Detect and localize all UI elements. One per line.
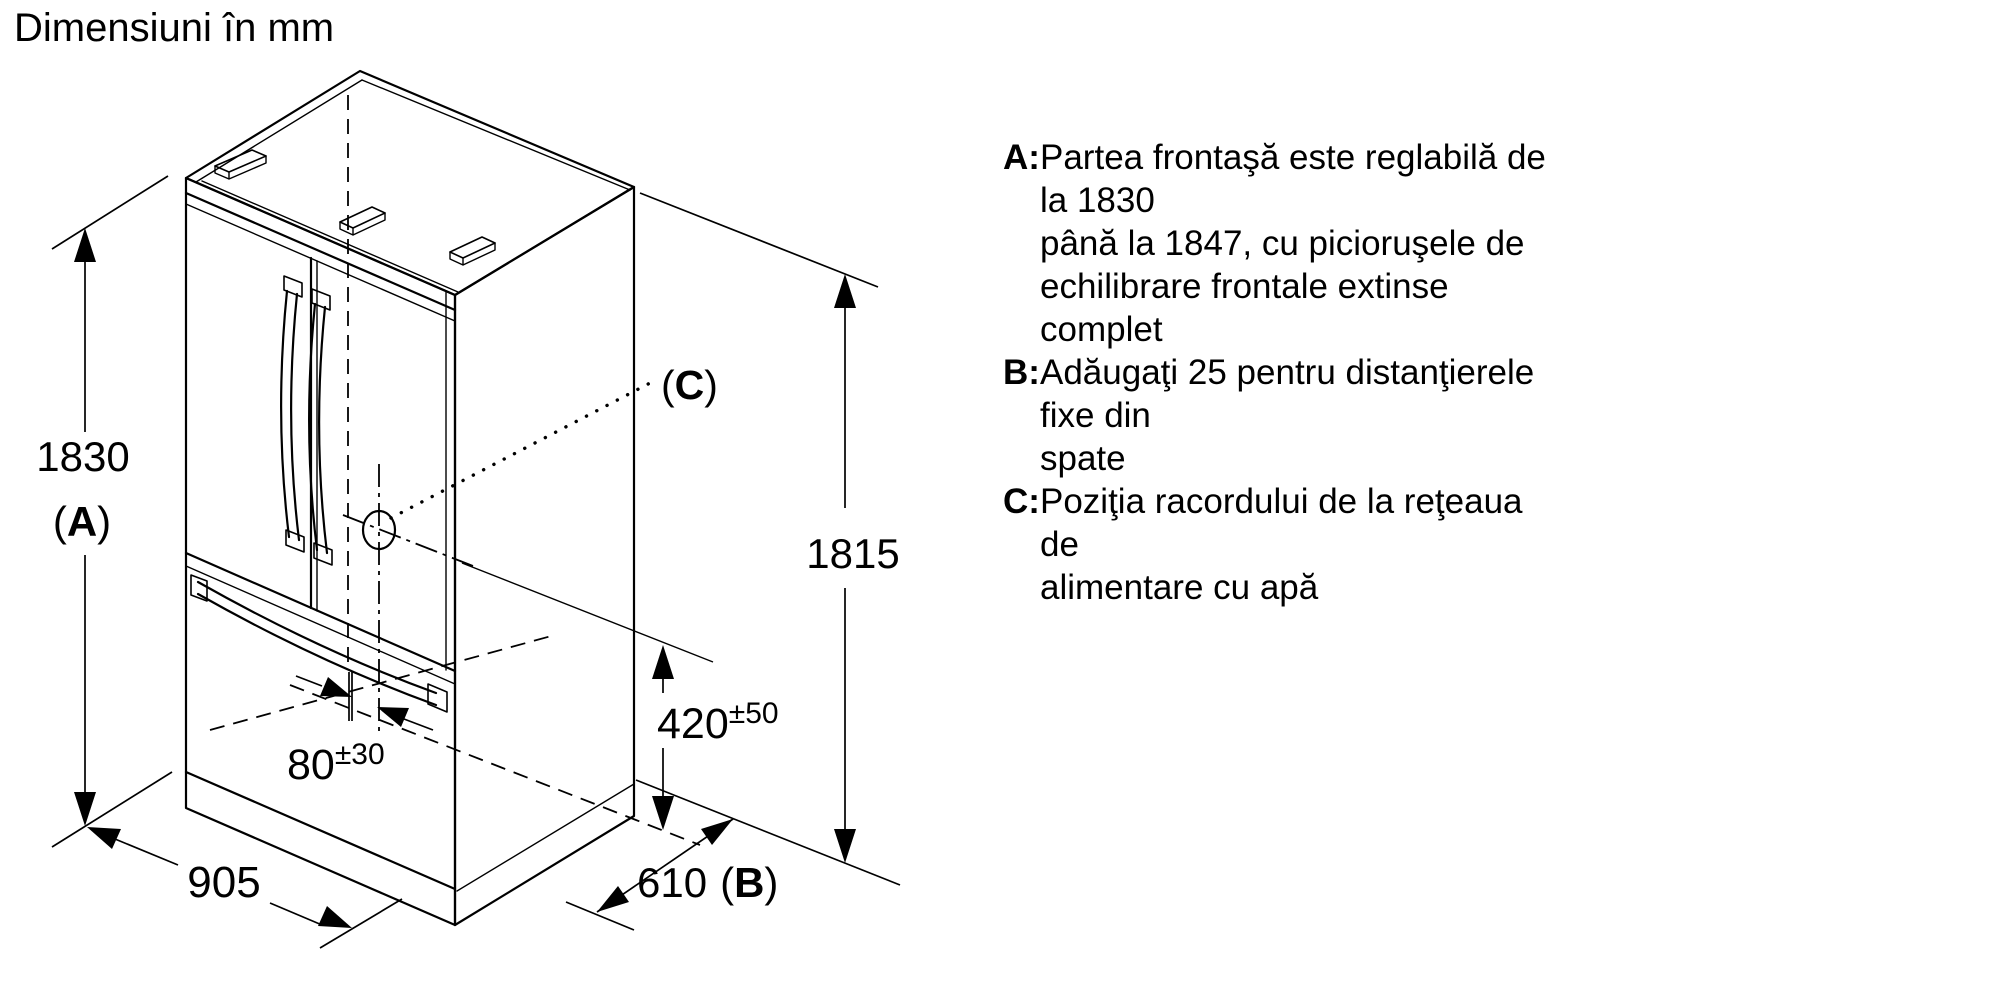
right-door-handle [309, 289, 332, 565]
note-b-line: spate [1040, 437, 1563, 480]
dimension-connection-height: 420±50 [462, 563, 779, 830]
dimension-drawing-page: { "title": "Dimensiuni în mm", "symbols"… [0, 0, 2000, 1000]
dimension-front-height: 1830 (A) [36, 176, 172, 847]
fridge-side-face [455, 187, 634, 925]
center-line-group: (C) [343, 95, 718, 736]
dimension-rear-height: 1815 [636, 193, 900, 885]
rear-height-value: 1815 [806, 530, 899, 577]
fridge-top-face [186, 71, 634, 295]
dimension-diagram: (C) 1830 (A) 1815 420±50 80±30 [0, 0, 1000, 1000]
note-b: B: Adăugaţi 25 pentru distanţierele fixe… [1003, 351, 1563, 480]
label-C: (C) [661, 362, 718, 408]
note-a-line: echilibrare frontale extinse complet [1040, 265, 1563, 351]
connection-offset-value: 80±30 [287, 738, 385, 789]
hinge-right [450, 237, 495, 265]
fridge-outline [186, 71, 700, 925]
note-b-label: B: [1003, 351, 1040, 394]
fridge-front-face [186, 178, 455, 925]
connection-axis-cross [343, 515, 473, 566]
left-door-handle [281, 276, 304, 552]
width-value: 905 [187, 858, 260, 907]
note-a-line: până la 1847, cu picioruşele de [1040, 222, 1563, 265]
leader-dotted-line [391, 383, 650, 518]
hinge-center [340, 207, 385, 235]
connection-height-value: 420±50 [657, 697, 779, 748]
note-c-line: Poziţia racordului de la reţeaua de [1040, 480, 1563, 566]
note-a-line: Partea frontaşă este reglabilă de la 183… [1040, 136, 1563, 222]
front-height-ref: (A) [53, 498, 111, 545]
note-a: A: Partea frontaşă este reglabilă de la … [1003, 136, 1563, 351]
note-a-label: A: [1003, 136, 1040, 179]
note-c: C: Poziţia racordului de la reţeaua de a… [1003, 480, 1563, 609]
front-height-value: 1830 [36, 433, 129, 480]
dimension-depth: 610(B) [566, 819, 778, 930]
depth-value: 610(B) [637, 859, 778, 906]
note-c-line: alimentare cu apă [1040, 566, 1563, 609]
note-c-label: C: [1003, 480, 1040, 523]
hidden-floor-line-left [210, 635, 555, 730]
notes-block: A: Partea frontaşă este reglabilă de la … [1003, 136, 1563, 609]
note-b-line: Adăugaţi 25 pentru distanţierele fixe di… [1040, 351, 1563, 437]
drawer-handle [191, 575, 447, 712]
